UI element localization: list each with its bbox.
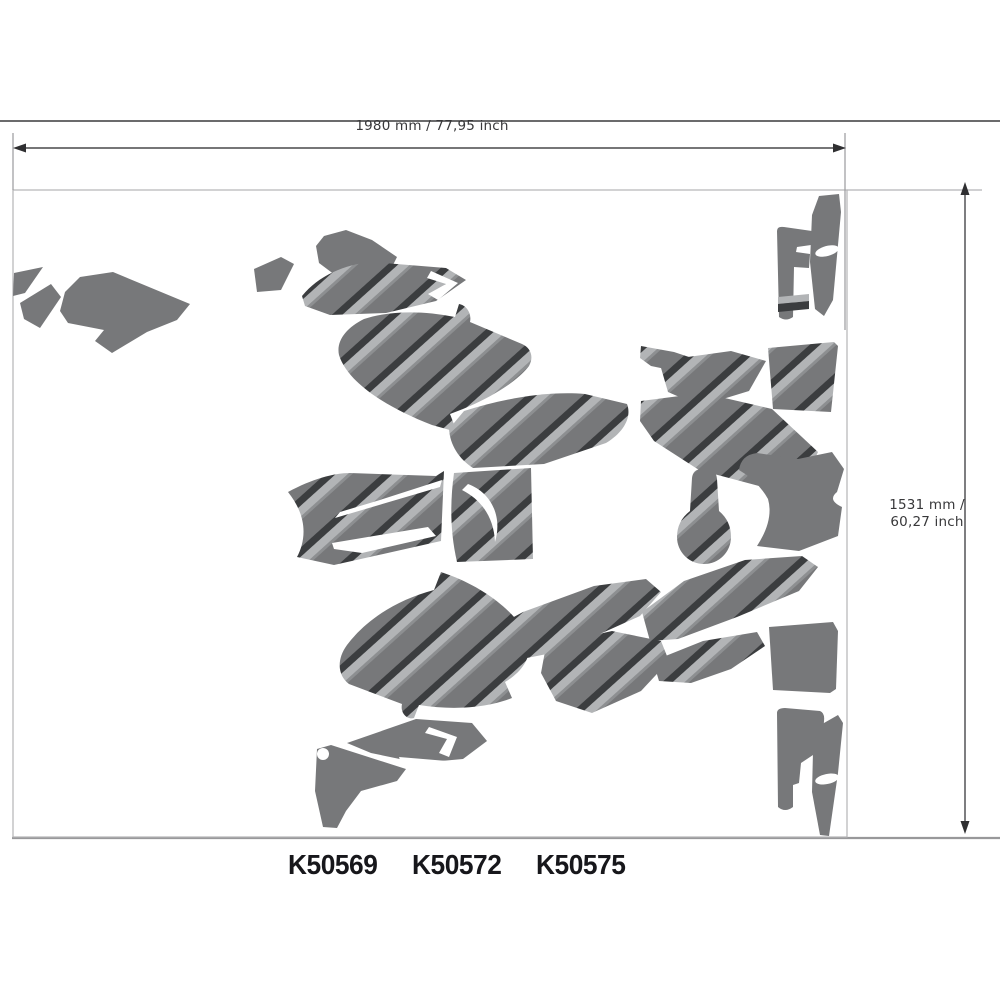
decal-shape	[347, 719, 487, 763]
decal-shape	[769, 622, 838, 693]
part-number: K50569	[288, 849, 377, 881]
decal-shape-striped	[541, 631, 669, 713]
product-diagram: 1980 mm / 77,95 inch 1531 mm / 60,27 inc…	[0, 0, 1000, 1000]
width-dimension-arrow	[13, 144, 846, 153]
decal-shape	[315, 745, 406, 828]
decal-shape	[60, 272, 190, 353]
cutout-hole	[317, 748, 329, 760]
decal-shape-striped	[768, 342, 838, 412]
part-number: K50575	[536, 849, 625, 881]
height-dimension-label-line1: 1531 mm /	[872, 497, 982, 514]
width-dimension-label: 1980 mm / 77,95 inch	[0, 118, 864, 134]
part-numbers: K50569 K50572 K50575	[288, 849, 631, 881]
decal-shape-striped	[340, 572, 530, 718]
decal-shape	[739, 452, 844, 551]
height-dimension-label: 1531 mm / 60,27 inch	[872, 497, 982, 530]
decal-shape-striped	[653, 632, 765, 683]
decal-shapes	[13, 194, 844, 836]
decal-shape-striped	[449, 393, 628, 468]
decal-shape-keyhole	[677, 469, 731, 564]
height-dimension-label-line2: 60,27 inch	[872, 514, 982, 531]
decal-shape	[254, 257, 294, 292]
part-number: K50572	[412, 849, 501, 881]
decal-shape	[13, 267, 43, 296]
